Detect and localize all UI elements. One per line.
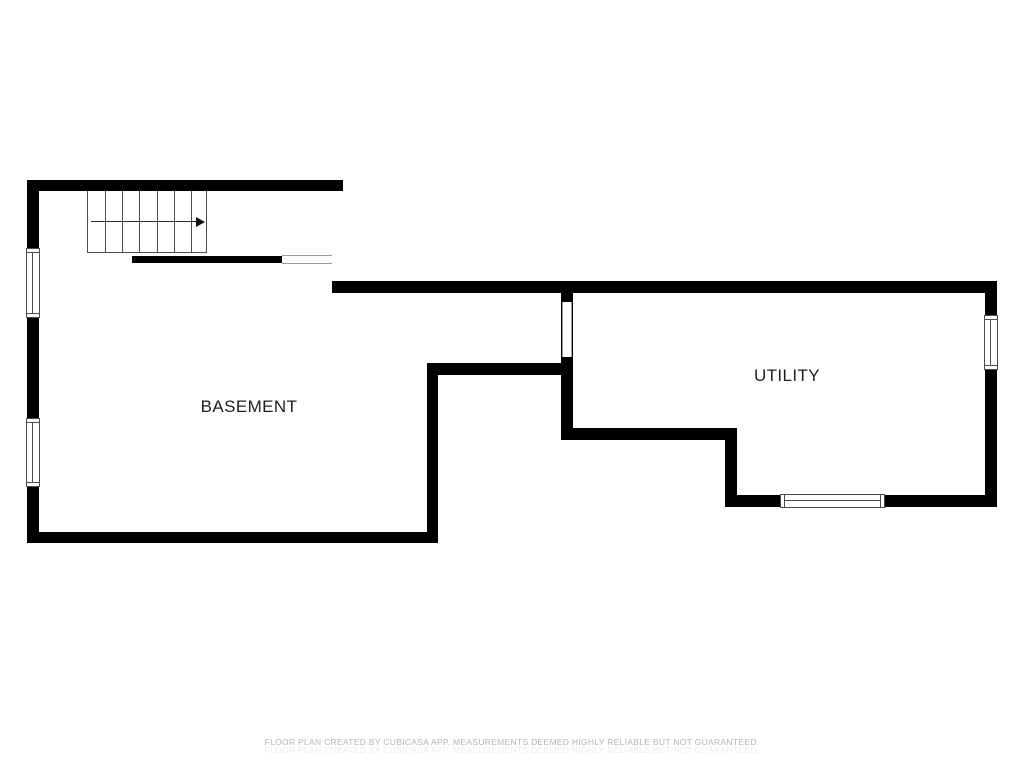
utility-step-wall-h [561, 428, 737, 440]
window-frame-line [32, 423, 33, 482]
staircase [87, 191, 207, 253]
window-frame-line [880, 495, 881, 507]
stair-direction-arrow-head [196, 217, 205, 227]
basement-left-wall [27, 180, 39, 543]
stair-direction-arrow-line [91, 221, 196, 222]
opening-under-stairs [282, 255, 332, 264]
window-left-lower [26, 418, 40, 487]
window-frame-line [990, 320, 991, 365]
basement-right-wall [427, 363, 438, 543]
window-frame-line [32, 253, 33, 313]
basement-bottom-wall [28, 532, 438, 543]
window-frame-line [27, 422, 39, 423]
basement-utility-divider-wall [427, 363, 573, 375]
window-right [984, 315, 998, 370]
room-label-basement: BASEMENT [201, 397, 298, 417]
window-frame-line [784, 495, 785, 507]
opening-utility-door [562, 302, 572, 357]
understair-wall [132, 256, 282, 263]
utility-top-wall [332, 281, 997, 293]
window-left-upper [26, 248, 40, 318]
basement-top-wall [28, 180, 343, 191]
floor-plan-canvas: BASEMENT UTILITY FLOOR PLAN CREATED BY C… [0, 0, 1024, 768]
window-frame-line [785, 500, 880, 501]
window-frame-line [985, 365, 997, 366]
room-label-utility: UTILITY [754, 366, 820, 386]
footer-disclaimer-faint: FLOOR PLAN CREATED BY CUBICASA APP. MEAS… [0, 745, 1024, 755]
window-frame-line [27, 252, 39, 253]
floor-plan-layer [0, 0, 1024, 768]
window-bottom [780, 494, 885, 508]
window-frame-line [27, 482, 39, 483]
window-frame-line [985, 319, 997, 320]
window-frame-line [27, 313, 39, 314]
